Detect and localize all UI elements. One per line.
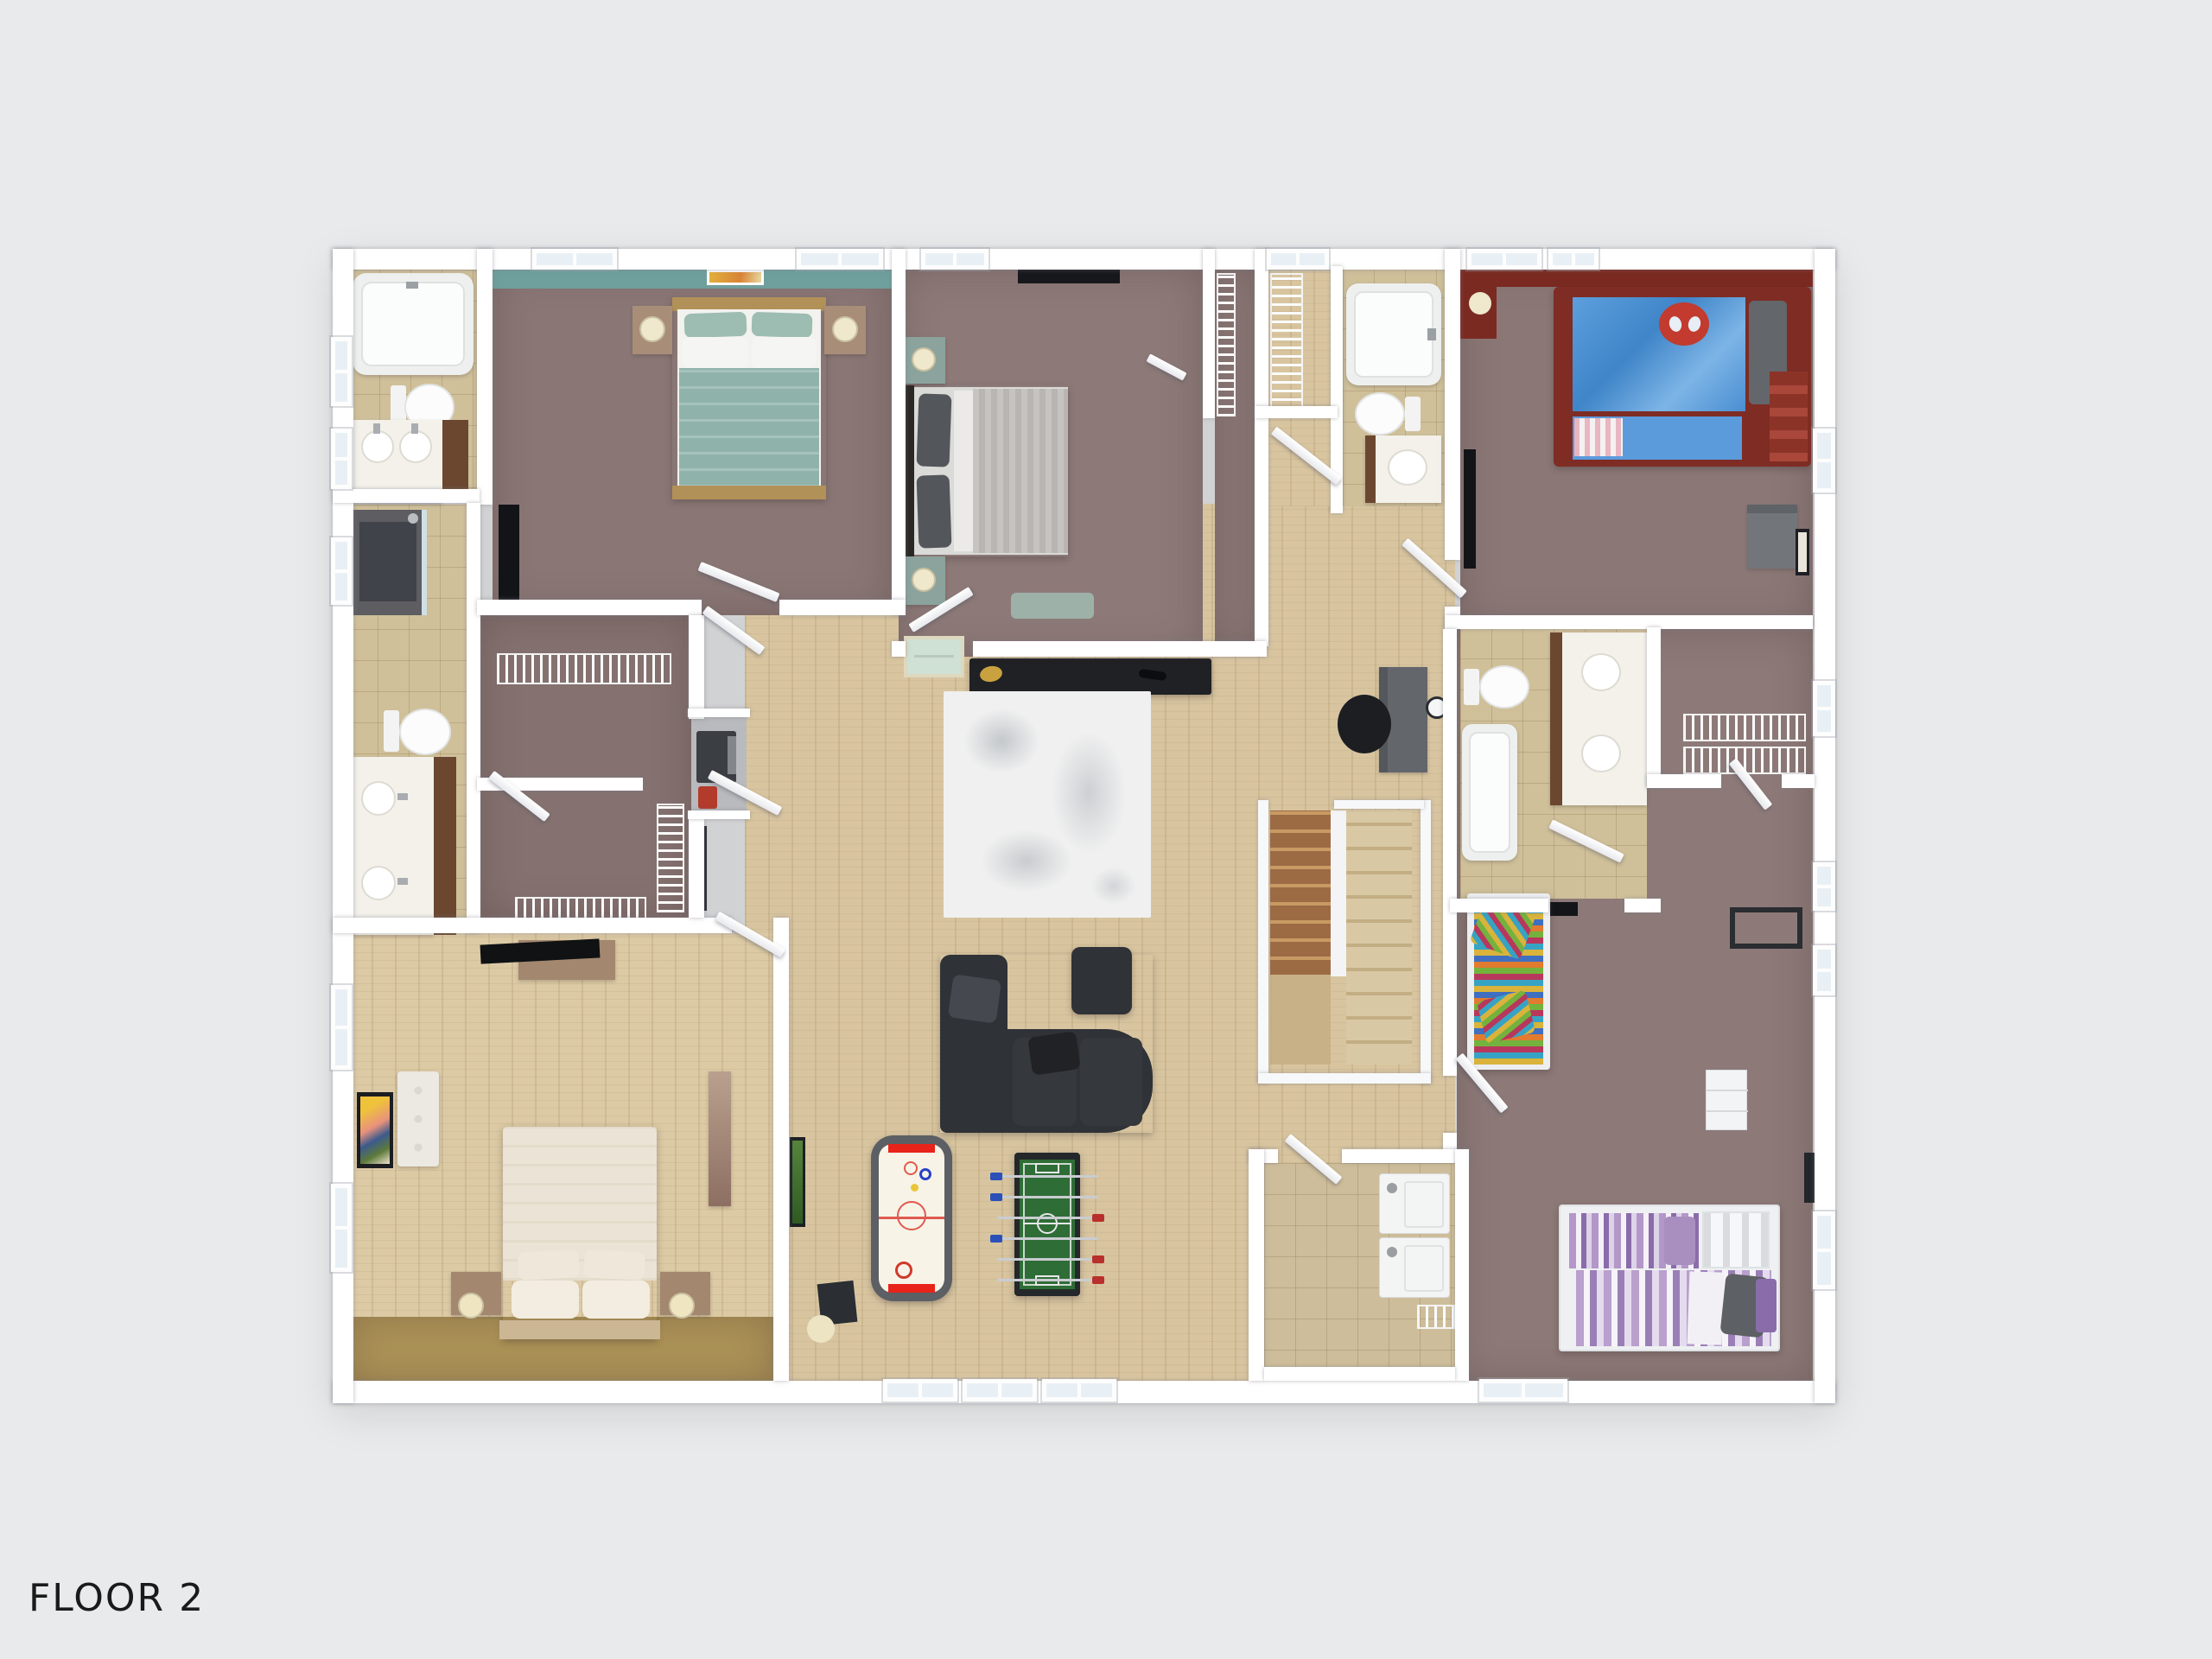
- door-bath-d: [1548, 819, 1624, 862]
- doors-layer: [0, 0, 2212, 1659]
- door-closet-a: [702, 606, 766, 655]
- door-closet-b: [708, 770, 782, 816]
- floor-plan-page: FLOOR 2: [0, 0, 2212, 1659]
- door-bedroom1: [698, 562, 780, 602]
- door-bedroom2: [908, 587, 973, 632]
- door-bedroom4: [715, 912, 785, 958]
- door-laundry: [1285, 1134, 1343, 1185]
- door-bath-c: [1271, 427, 1342, 486]
- door-bedroom2-closet: [1146, 353, 1186, 380]
- door-bedroom5: [1455, 1053, 1508, 1114]
- floor-label: FLOOR 2: [29, 1576, 205, 1620]
- door-closet2: [1729, 758, 1773, 810]
- door-bath-b: [488, 771, 550, 822]
- door-kidsroom: [1402, 538, 1467, 599]
